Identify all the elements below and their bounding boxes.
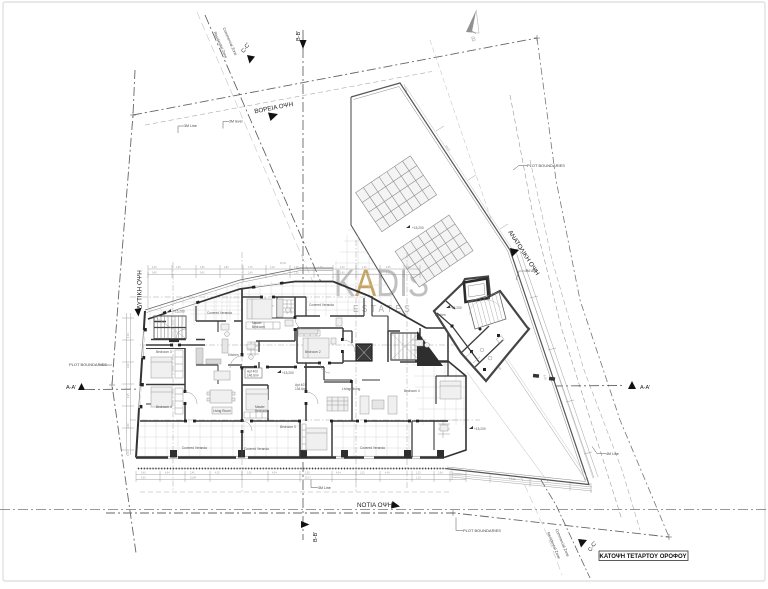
svg-text:0,30: 0,30 [141, 478, 146, 480]
svg-text:Bedroom 2: Bedroom 2 [305, 350, 321, 354]
svg-text:2,04: 2,04 [438, 473, 443, 475]
svg-text:Covered Veranda: Covered Veranda [207, 311, 232, 315]
svg-text:2,45: 2,45 [294, 267, 299, 269]
svg-text:+15,200: +15,200 [450, 306, 462, 310]
svg-text:A-A': A-A' [66, 385, 76, 391]
svg-text:PLOT BOUNDARIES: PLOT BOUNDARIES [463, 528, 501, 533]
svg-text:1,15: 1,15 [386, 273, 391, 275]
svg-text:Covered Veranda: Covered Veranda [309, 303, 334, 307]
svg-text:2,40: 2,40 [340, 273, 345, 275]
svg-text:+15,200: +15,200 [474, 427, 486, 431]
svg-text:1,10: 1,10 [294, 273, 299, 275]
svg-text:4M Line: 4M Line [606, 452, 619, 456]
svg-text:23,84: 23,84 [190, 478, 196, 480]
svg-text:1,40: 1,40 [362, 267, 367, 269]
svg-text:4,04: 4,04 [128, 451, 130, 456]
svg-text:1,05: 1,05 [176, 267, 181, 269]
svg-text:B-B': B-B' [313, 532, 319, 542]
svg-text:3M Line: 3M Line [525, 269, 537, 273]
svg-text:2,10: 2,10 [340, 267, 345, 269]
svg-text:PLOT BOUNDARIES: PLOT BOUNDARIES [527, 163, 565, 168]
svg-text:4,04: 4,04 [165, 473, 170, 475]
svg-text:Bedroom 4: Bedroom 4 [404, 389, 420, 393]
svg-text:1,20: 1,20 [406, 267, 411, 269]
svg-text:25,94: 25,94 [280, 263, 286, 265]
svg-text:3M Line: 3M Line [318, 486, 331, 490]
svg-text:1,23: 1,23 [416, 473, 421, 475]
svg-text:A-A': A-A' [640, 385, 650, 391]
svg-text:Kitchen: Kitchen [228, 353, 239, 357]
svg-text:B-B': B-B' [296, 31, 302, 41]
svg-text:+15,200: +15,200 [412, 226, 424, 230]
svg-text:Bedroom 3: Bedroom 3 [156, 350, 172, 354]
svg-text:2,90: 2,90 [224, 267, 229, 269]
svg-text:3,10: 3,10 [270, 267, 275, 269]
svg-text:2,40: 2,40 [190, 473, 195, 475]
svg-text:+15,200: +15,200 [282, 371, 294, 375]
svg-text:2,40: 2,40 [248, 273, 253, 275]
svg-text:Living/Dining: Living/Dining [342, 387, 360, 391]
svg-text:4,04: 4,04 [385, 473, 390, 475]
svg-text:20,17: 20,17 [305, 478, 311, 480]
svg-text:2,60: 2,60 [200, 267, 205, 269]
svg-text:3M level: 3M level [229, 120, 243, 124]
svg-text:134.6m²: 134.6m² [295, 387, 307, 391]
svg-text:Bedroom: Bedroom [255, 409, 268, 413]
svg-text:0,42: 0,42 [200, 273, 205, 275]
svg-text:1,30: 1,30 [318, 267, 323, 269]
svg-text:ΚΑΤΟΨΗ ΤΕΤΑΡΤΟΥ ΟΡΟΦΟΥ: ΚΑΤΟΨΗ ΤΕΤΑΡΤΟΥ ΟΡΟΦΟΥ [600, 554, 687, 560]
svg-text:146.6m²: 146.6m² [247, 374, 259, 378]
svg-text:+15,200: +15,200 [173, 310, 185, 314]
svg-text:1,70: 1,70 [248, 267, 253, 269]
svg-text:0,45: 0,45 [152, 273, 157, 275]
svg-text:4,25: 4,25 [128, 393, 130, 398]
svg-text:Bedroom: Bedroom [252, 325, 265, 329]
svg-text:2,05: 2,05 [386, 267, 391, 269]
svg-text:2,40: 2,40 [128, 363, 130, 368]
svg-text:1,10: 1,10 [416, 478, 421, 480]
svg-text:1,32: 1,32 [360, 473, 365, 475]
svg-text:Kitchen: Kitchen [435, 313, 446, 317]
svg-text:Bedroom 4: Bedroom 4 [156, 405, 172, 409]
svg-text:4,04: 4,04 [128, 333, 130, 338]
svg-text:2,40: 2,40 [128, 423, 130, 428]
svg-text:1,92: 1,92 [247, 473, 252, 475]
svg-text:1,50: 1,50 [305, 473, 310, 475]
svg-text:2,40: 2,40 [141, 473, 146, 475]
svg-text:4,04: 4,04 [272, 473, 277, 475]
svg-text:4,25: 4,25 [215, 473, 220, 475]
svg-text:2,40: 2,40 [152, 267, 157, 269]
svg-text:Bedroom 3: Bedroom 3 [280, 425, 296, 429]
svg-text:ΔΥΤΙΚΗ ΟΨΗ: ΔΥΤΙΚΗ ΟΨΗ [137, 270, 144, 309]
svg-text:3M Line: 3M Line [184, 124, 197, 128]
svg-text:ΝΟΤΙΑ ΟΨΗ: ΝΟΤΙΑ ΟΨΗ [357, 502, 393, 509]
svg-text:PLOT BOUNDARIES: PLOT BOUNDARIES [69, 362, 107, 367]
svg-text:4,04: 4,04 [336, 473, 341, 475]
svg-text:Covered Veranda: Covered Veranda [244, 447, 269, 451]
svg-text:Covered Veranda: Covered Veranda [360, 446, 385, 450]
svg-text:Living Room: Living Room [213, 409, 231, 413]
svg-text:Covered Veranda: Covered Veranda [182, 446, 207, 450]
